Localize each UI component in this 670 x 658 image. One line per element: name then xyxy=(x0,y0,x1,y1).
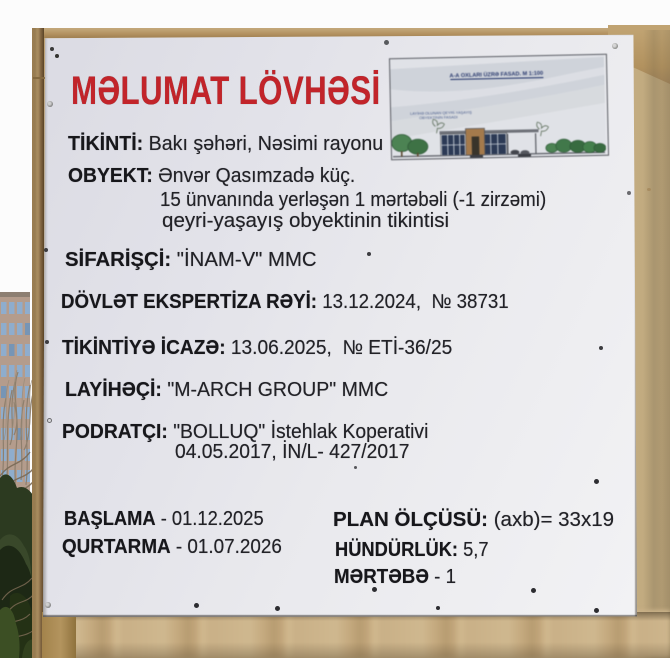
svg-text:OBYEKTİNİN FASADI: OBYEKTİNİN FASADI xyxy=(419,114,458,120)
